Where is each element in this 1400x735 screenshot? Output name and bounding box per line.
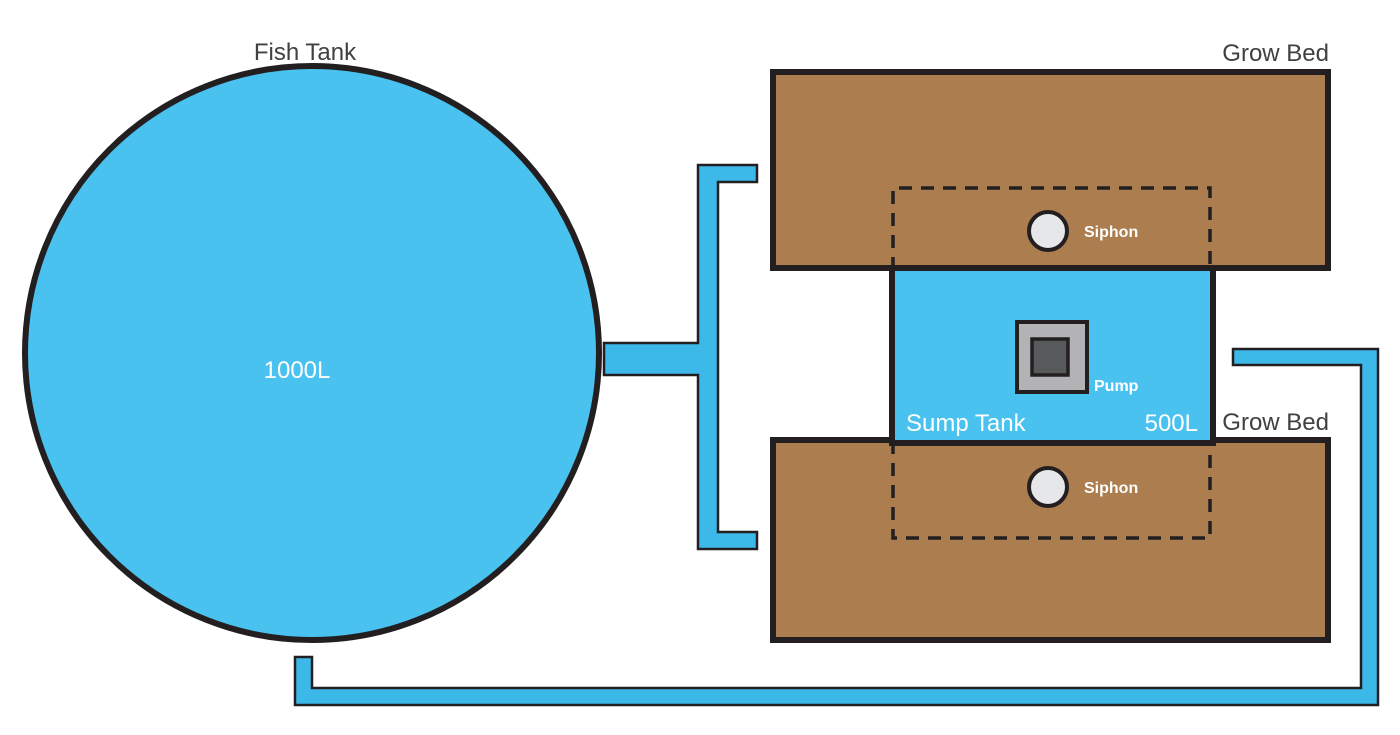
pump-core xyxy=(1032,339,1068,375)
fish-tank-capacity: 1000L xyxy=(264,357,331,384)
aquaponics-diagram: Fish Tank 1000L Grow Bed Grow Bed Sump T… xyxy=(0,0,1400,735)
siphon-top-label: Siphon xyxy=(1084,224,1138,241)
sump-tank-label: Sump Tank xyxy=(906,410,1027,437)
pump-label: Pump xyxy=(1094,378,1139,395)
siphon-bottom-label: Siphon xyxy=(1084,480,1138,497)
grow-bed-bottom-label: Grow Bed xyxy=(1222,409,1329,436)
grow-bed-top-label: Grow Bed xyxy=(1222,40,1329,67)
sump-tank-capacity: 500L xyxy=(1145,410,1198,437)
supply-pipe xyxy=(604,165,757,549)
fish-tank-label: Fish Tank xyxy=(254,39,357,66)
siphon-bottom-icon xyxy=(1029,468,1067,506)
fish-tank xyxy=(25,66,599,640)
siphon-top-icon xyxy=(1029,212,1067,250)
diagram-canvas: Fish Tank 1000L Grow Bed Grow Bed Sump T… xyxy=(0,0,1400,735)
